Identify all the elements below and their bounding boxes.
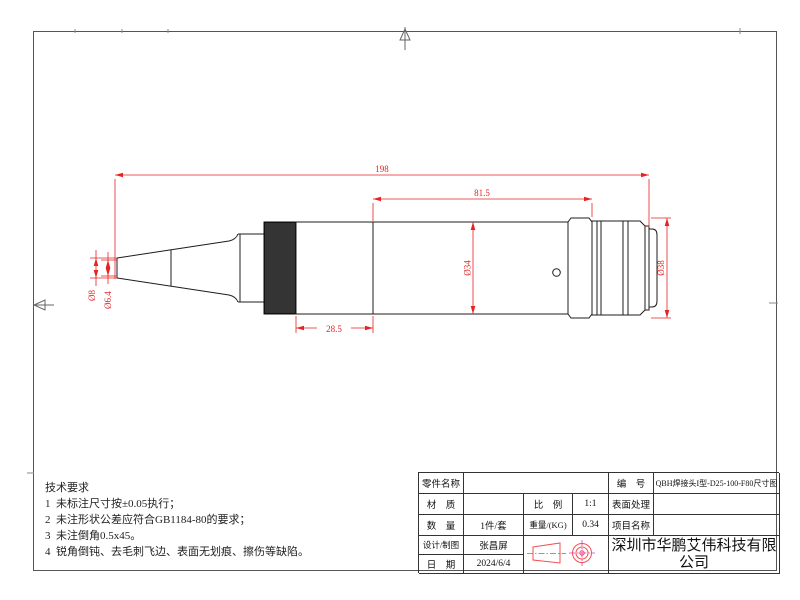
tech-requirements-title: 技术要求 (45, 480, 415, 496)
projection-symbol-cell (524, 536, 609, 574)
tech-requirement-item: 2 未注形状公差应符合GB1184-80的要求； (45, 512, 415, 528)
scale-label: 比 例 (524, 494, 573, 515)
quantity-value: 1件/套 (464, 515, 524, 536)
date-value: 2024/6/4 (464, 555, 524, 574)
project-label: 项目名称 (609, 515, 654, 536)
number-label: 编 号 (609, 473, 654, 494)
weight-label: 重量/(KG) (524, 515, 573, 536)
surface-label: 表面处理 (609, 494, 654, 515)
material-label: 材 质 (419, 494, 464, 515)
title-block: 零件名称 编 号 QBH焊接头I型-D25-100-F80尺寸图 材 质 比 例… (418, 472, 779, 573)
project-value (654, 515, 780, 536)
number-value: QBH焊接头I型-D25-100-F80尺寸图 (654, 473, 780, 494)
tech-requirement-item: 1 未标注尺寸按±0.05执行； (45, 496, 415, 512)
weight-value: 0.34 (573, 515, 609, 536)
date-label: 日 期 (419, 555, 464, 574)
part-name-label: 零件名称 (419, 473, 464, 494)
surface-value (654, 494, 780, 515)
tech-requirements: 技术要求 1 未标注尺寸按±0.05执行； 2 未注形状公差应符合GB1184-… (45, 480, 415, 560)
scale-value: 1:1 (573, 494, 609, 515)
designer-value: 张昌屏 (464, 536, 524, 555)
drawing-sheet: 技术要求 1 未标注尺寸按±0.05执行； 2 未注形状公差应符合GB1184-… (0, 0, 800, 600)
quantity-label: 数 量 (419, 515, 464, 536)
designer-label: 设计/制图 (419, 536, 464, 555)
part-name-value (464, 473, 609, 494)
tech-requirement-item: 4 锐角倒钝、去毛刺飞边、表面无划痕、擦伤等缺陷。 (45, 544, 415, 560)
company-name: 深圳市华鹏艾伟科技有限公司 (609, 536, 780, 574)
tech-requirement-item: 3 未注倒角0.5x45。 (45, 528, 415, 544)
material-value (464, 494, 524, 515)
